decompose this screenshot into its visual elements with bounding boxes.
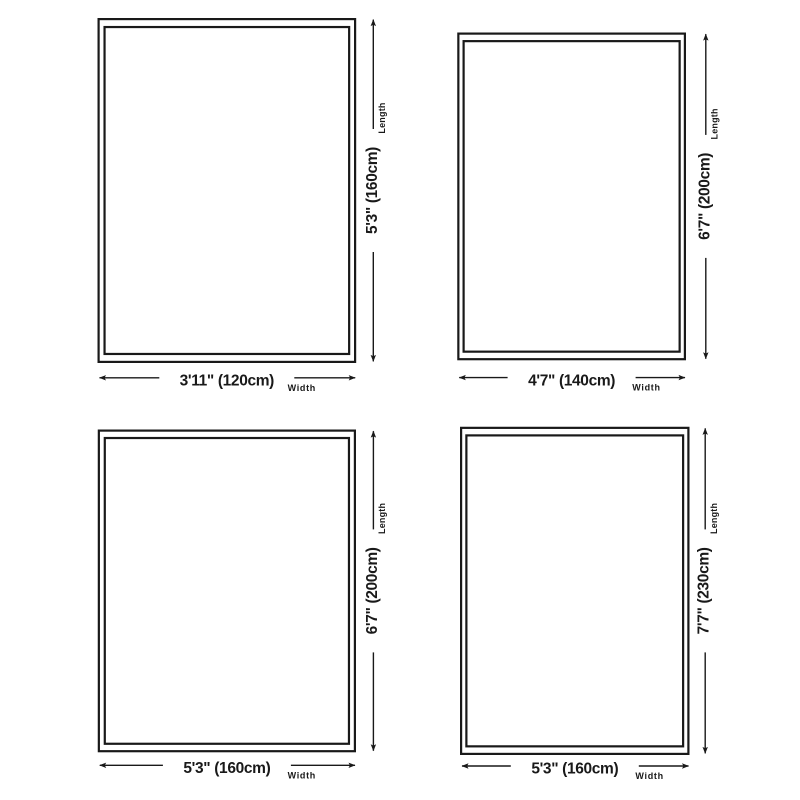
svg-text:3'11" (120cm): 3'11" (120cm) (180, 373, 275, 390)
svg-text:Length: Length (709, 108, 719, 139)
svg-text:Width: Width (288, 770, 316, 780)
svg-text:6'7" (200cm): 6'7" (200cm) (364, 547, 381, 634)
svg-text:5'3" (160cm): 5'3" (160cm) (531, 761, 618, 778)
svg-text:6'7" (200cm): 6'7" (200cm) (696, 153, 713, 240)
svg-text:Width: Width (632, 383, 660, 393)
svg-text:7'7" (230cm): 7'7" (230cm) (696, 547, 713, 634)
svg-text:Width: Width (288, 383, 316, 393)
svg-text:Width: Width (635, 771, 663, 781)
svg-text:Length: Length (377, 102, 387, 133)
svg-text:Length: Length (709, 503, 719, 534)
svg-text:4'7" (140cm): 4'7" (140cm) (528, 372, 615, 389)
svg-text:5'3" (160cm): 5'3" (160cm) (183, 760, 270, 777)
svg-text:Length: Length (377, 503, 387, 534)
svg-text:5'3" (160cm): 5'3" (160cm) (364, 147, 381, 234)
